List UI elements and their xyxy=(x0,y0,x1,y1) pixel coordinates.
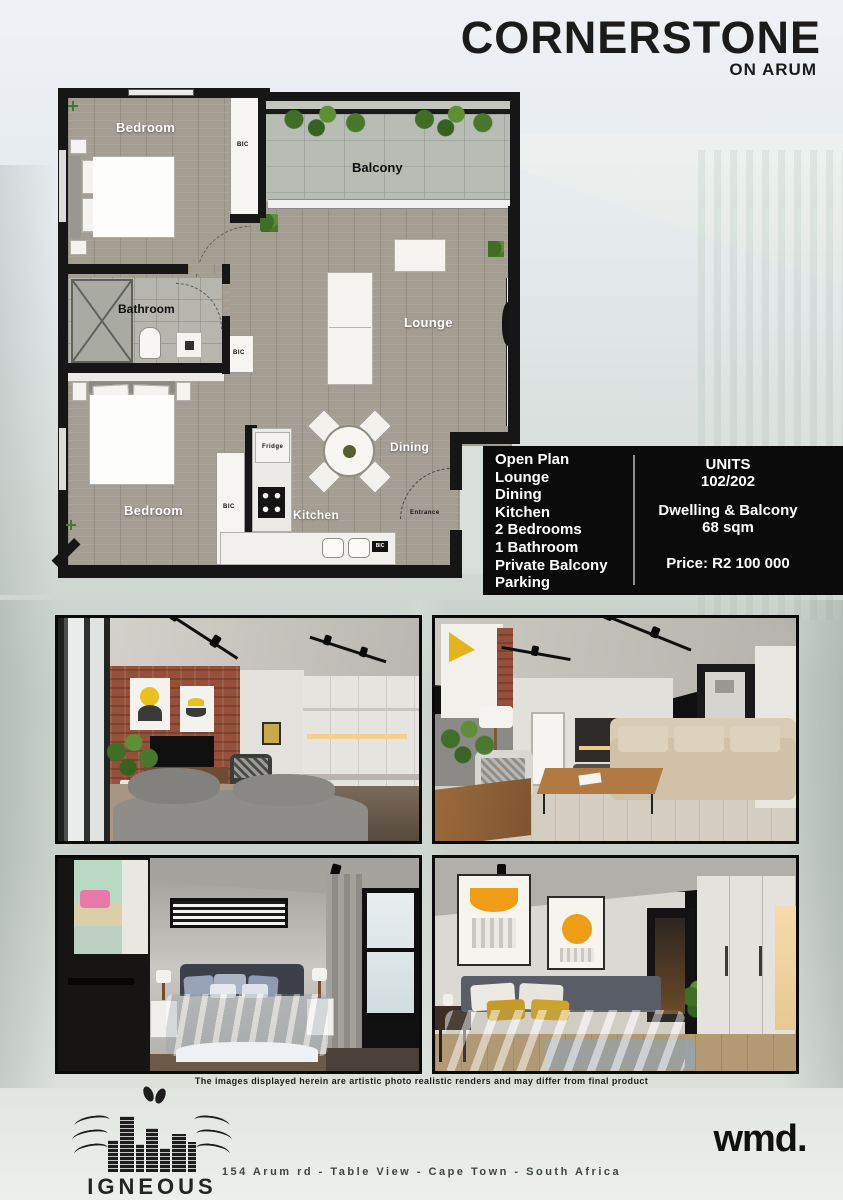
info-divider xyxy=(633,455,635,585)
bathroom-shower xyxy=(71,279,133,363)
logo-leaf-1 xyxy=(141,1085,156,1103)
feature-item: 1 Bathroom xyxy=(495,539,633,557)
kitchen-sink-1 xyxy=(322,538,344,558)
bathroom-door-gap xyxy=(222,284,230,316)
flyer-page: CORNERSTONE ON ARUM Balcony Bedroom BIC xyxy=(0,0,843,1200)
logo-leaf-2 xyxy=(153,1087,168,1105)
dining-label: Dining xyxy=(390,440,429,454)
balcony-plants-right xyxy=(398,104,504,138)
bedroom-top-window xyxy=(128,89,194,96)
p2-coffee-table xyxy=(535,768,665,814)
bedroom-bottom-bed xyxy=(89,395,175,485)
p4-duvet xyxy=(445,1010,685,1074)
wall-bedroom-balcony-divider xyxy=(258,96,266,218)
kitchen-bic-icon: BIC xyxy=(372,541,388,552)
p3-shelf xyxy=(68,978,134,985)
p3-window-right xyxy=(362,888,419,1018)
unit-info-box: UNITS 102/202 Dwelling & Balcony 68 sqm … xyxy=(633,446,843,595)
bedroom-door-gap xyxy=(188,264,222,274)
wall-bottom xyxy=(58,565,462,578)
photo-living-room-1 xyxy=(55,615,422,844)
p2-console xyxy=(435,778,531,844)
size-value: 68 sqm xyxy=(639,519,817,536)
p1-art-frame-1 xyxy=(130,678,170,730)
bic-closet-hall-label: BIC xyxy=(233,350,245,356)
lounge-sofa-seam xyxy=(329,327,371,328)
address: 154 Arum rd - Table View - Cape Town - S… xyxy=(0,1166,843,1178)
p2-leaves xyxy=(435,710,497,774)
survey-cross-top xyxy=(68,101,78,111)
kitchen-sink-2 xyxy=(348,538,370,558)
bedroom-bottom-label: Bedroom xyxy=(124,503,183,518)
kitchen-stove xyxy=(258,487,285,518)
bedroom-top-label: Bedroom xyxy=(116,120,175,135)
wall-lounge-right xyxy=(508,206,520,444)
p3-art xyxy=(74,860,148,954)
feature-item: Dining xyxy=(495,486,633,504)
bathroom-basin xyxy=(176,332,202,358)
dining-table xyxy=(323,425,375,477)
basin-bowl xyxy=(185,341,194,350)
logo-skyline xyxy=(97,1114,207,1172)
p4-desk-glow xyxy=(775,906,796,1030)
survey-cross-bottom xyxy=(66,520,76,530)
p3-slatted-window xyxy=(170,898,288,928)
p1-art-frame-2 xyxy=(180,686,214,732)
bedroom-top-bed xyxy=(93,156,175,238)
lounge-side-table xyxy=(394,239,446,272)
entrance-label: Entrance xyxy=(410,510,440,516)
units-value: 102/202 xyxy=(639,473,817,490)
balcony-label: Balcony xyxy=(352,160,403,175)
p3-floor-right xyxy=(326,1048,419,1071)
size-label: Dwelling & Balcony xyxy=(639,502,817,519)
photo-bedroom-2 xyxy=(432,855,799,1074)
p3-sheet xyxy=(176,1042,318,1062)
price: Price: R2 100 000 xyxy=(639,555,817,572)
balcony-plants-left xyxy=(266,104,378,138)
p4-art-frame-2 xyxy=(547,896,605,970)
photo-living-room-2 xyxy=(432,615,799,844)
photo-bedroom-1 xyxy=(55,855,422,1074)
p2-art-left xyxy=(441,624,503,718)
lounge-sofa xyxy=(327,272,373,385)
wall-balcony-top xyxy=(262,92,520,101)
features-box: Open Plan Lounge Dining Kitchen 2 Bedroo… xyxy=(483,446,633,595)
disclaimer: The images displayed herein are artistic… xyxy=(0,1076,843,1086)
feature-item: Lounge xyxy=(495,469,633,487)
feature-item: Open Plan xyxy=(495,451,633,469)
p2-brick-sliver xyxy=(497,628,513,716)
p1-sofa xyxy=(113,768,368,841)
feature-item: Kitchen xyxy=(495,504,633,522)
left-window-1 xyxy=(59,150,66,222)
p4-art-frame-1 xyxy=(457,874,531,966)
bathroom-toilet xyxy=(139,327,161,359)
lounge-label: Lounge xyxy=(404,315,453,330)
left-window-2 xyxy=(59,428,66,490)
feature-item: Private Balcony xyxy=(495,557,633,575)
balcony-sliding-door xyxy=(268,199,512,209)
dining-centerpiece xyxy=(343,445,356,458)
bedroom-top-headboard xyxy=(70,156,81,238)
kitchen-fridge-label: Fridge xyxy=(262,444,283,450)
feature-item: Parking xyxy=(495,574,633,592)
kitchen-label: Kitchen xyxy=(293,508,339,522)
bedroom-top-sidetable-2 xyxy=(70,240,87,255)
wall-bathroom-bottom xyxy=(58,363,230,373)
wall-step-vertical xyxy=(450,432,462,490)
bathroom-label: Bathroom xyxy=(118,302,175,316)
wall-balcony-right xyxy=(510,96,520,208)
bedroom-bottom-sidetable-1 xyxy=(72,382,87,401)
bic-closet-kitchen-label: BIC xyxy=(223,504,235,510)
plant-lounge xyxy=(488,241,504,257)
feature-item: 2 Bedrooms xyxy=(495,521,633,539)
bedroom-top-sidetable-1 xyxy=(70,139,87,154)
bic-closet-top-label: BIC xyxy=(237,142,249,148)
units-label: UNITS xyxy=(639,456,817,473)
agency-logo: wmd. xyxy=(700,1118,820,1161)
bedroom-bottom-sidetable-2 xyxy=(176,382,191,401)
